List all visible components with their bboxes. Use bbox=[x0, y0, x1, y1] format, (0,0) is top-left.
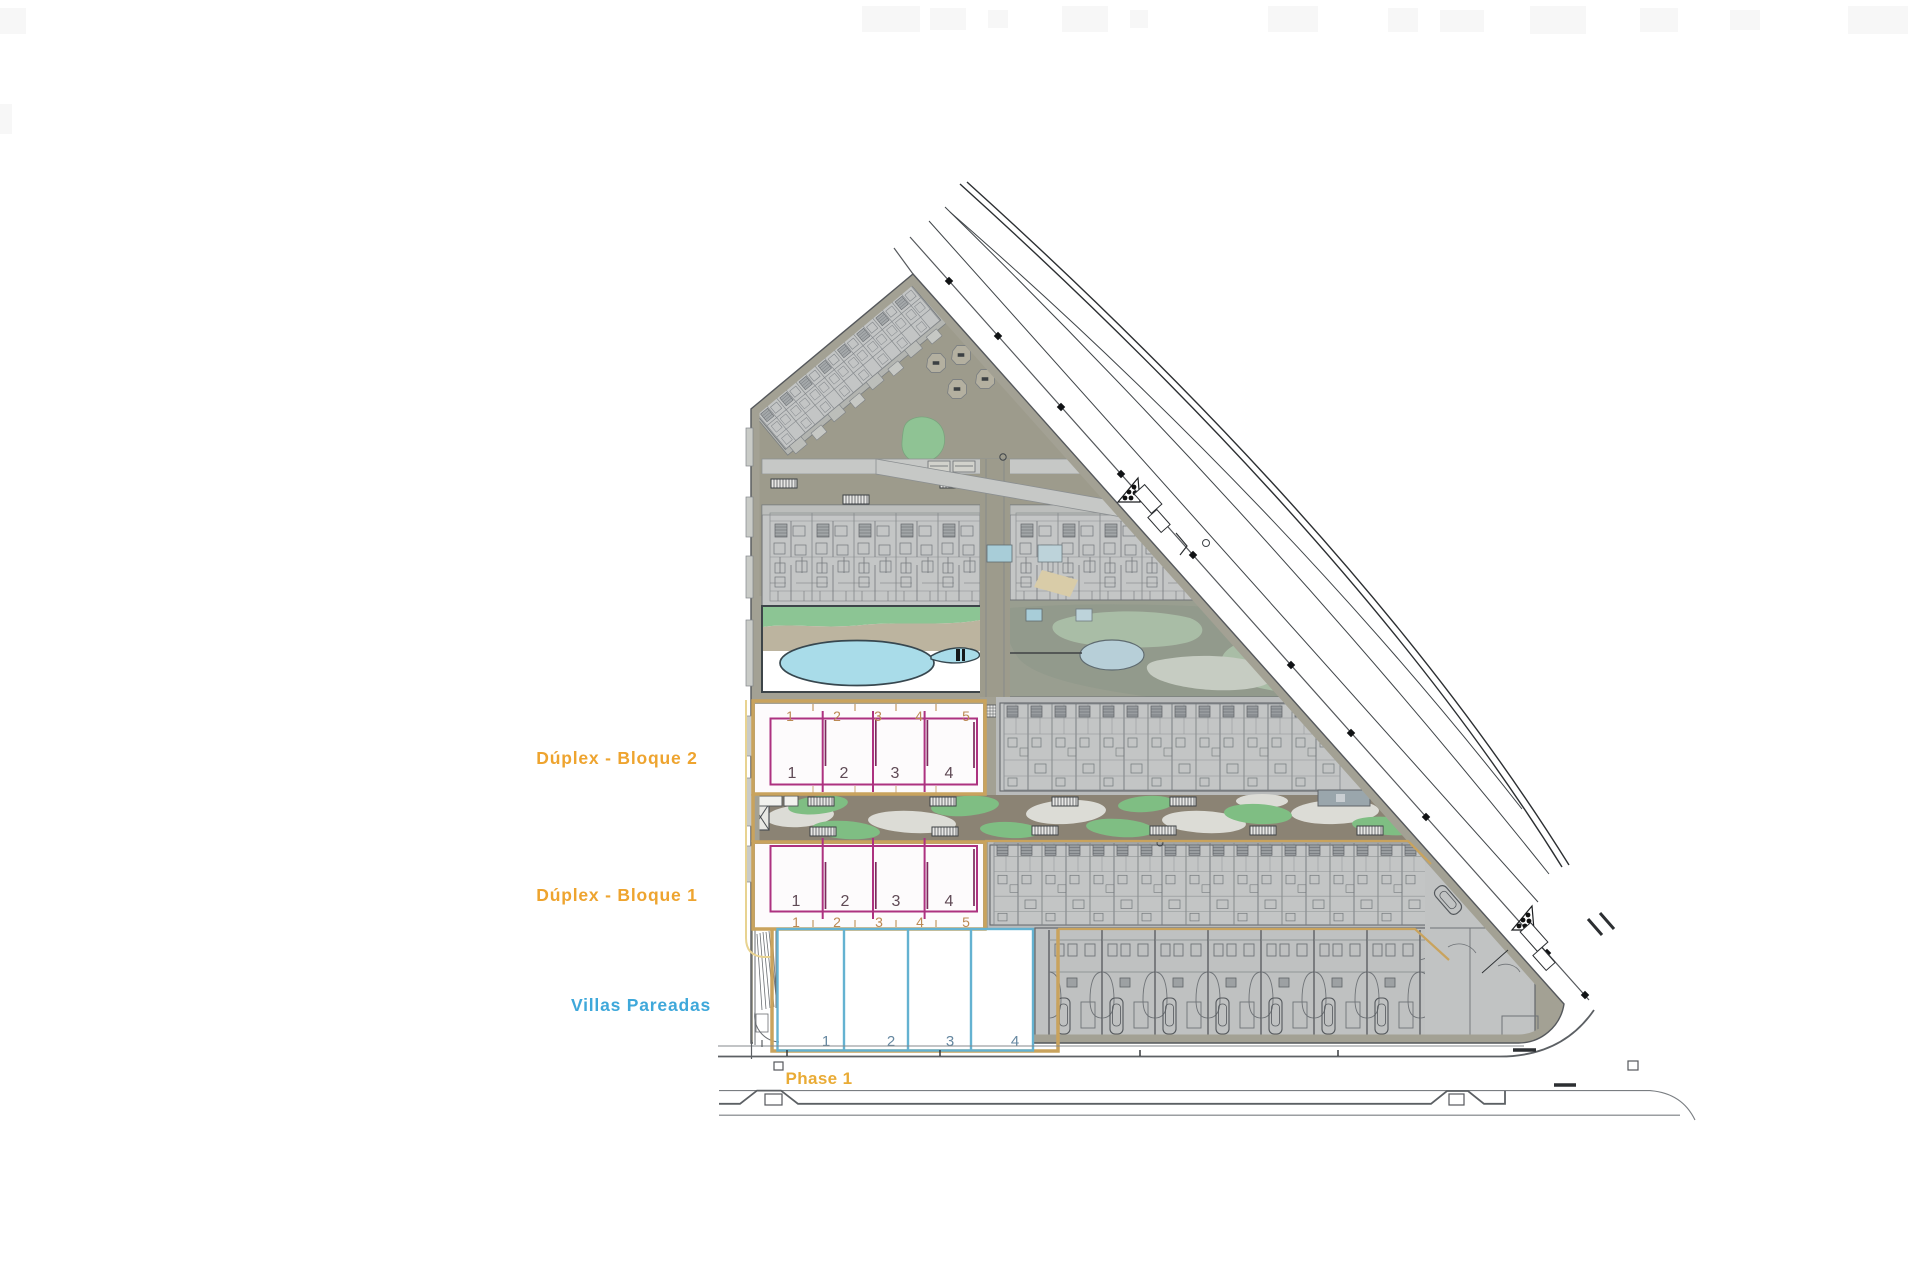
svg-text:5: 5 bbox=[962, 708, 970, 724]
svg-text:1: 1 bbox=[792, 893, 801, 910]
svg-text:1: 1 bbox=[788, 765, 797, 782]
svg-text:Dúplex - Bloque 1: Dúplex - Bloque 1 bbox=[536, 885, 697, 905]
svg-text:2: 2 bbox=[841, 893, 850, 910]
svg-text:3: 3 bbox=[892, 893, 901, 910]
svg-text:4: 4 bbox=[915, 708, 923, 724]
svg-text:3: 3 bbox=[946, 1033, 954, 1050]
svg-text:Villas Pareadas: Villas Pareadas bbox=[571, 995, 711, 1015]
svg-text:2: 2 bbox=[833, 914, 841, 930]
svg-text:1: 1 bbox=[792, 914, 800, 930]
svg-text:4: 4 bbox=[1011, 1033, 1019, 1050]
svg-text:2: 2 bbox=[887, 1033, 895, 1050]
svg-text:4: 4 bbox=[945, 893, 954, 910]
svg-text:3: 3 bbox=[891, 765, 900, 782]
svg-text:2: 2 bbox=[840, 765, 849, 782]
svg-text:1: 1 bbox=[786, 708, 794, 724]
svg-text:5: 5 bbox=[962, 914, 970, 930]
svg-text:3: 3 bbox=[874, 708, 882, 724]
svg-text:1: 1 bbox=[822, 1033, 830, 1050]
svg-text:4: 4 bbox=[916, 914, 924, 930]
svg-text:3: 3 bbox=[875, 914, 883, 930]
svg-text:Dúplex - Bloque 2: Dúplex - Bloque 2 bbox=[536, 748, 697, 768]
svg-text:2: 2 bbox=[833, 708, 841, 724]
svg-text:Phase 1: Phase 1 bbox=[785, 1069, 852, 1088]
svg-text:4: 4 bbox=[945, 765, 954, 782]
